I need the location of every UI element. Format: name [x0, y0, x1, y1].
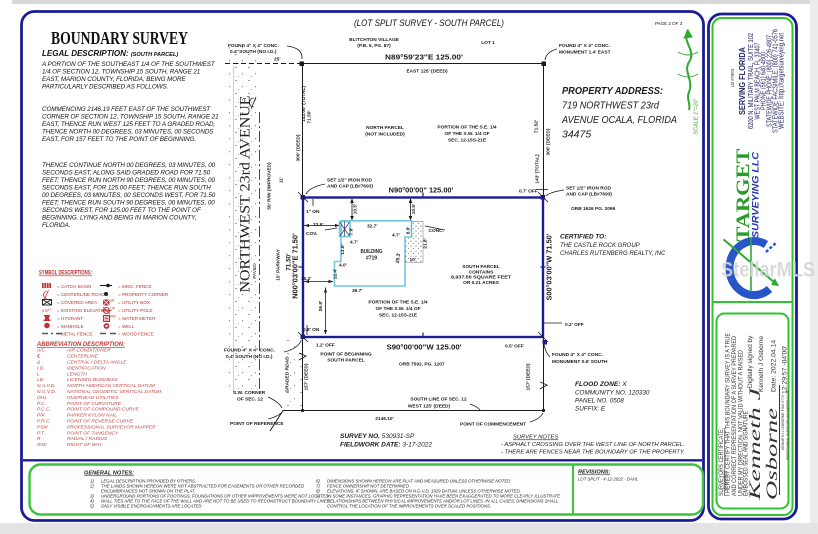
svg-text:CONTAINS: CONTAINS — [469, 269, 494, 275]
svg-text:25': 25' — [274, 57, 280, 63]
svg-text:CONC.: CONC. — [429, 228, 444, 234]
svg-text:0.4' SOUTH (NO I.D.): 0.4' SOUTH (NO I.D.) — [226, 354, 273, 360]
svg-text:ONLY VISIBLE ENCROACHMENTS ARE: ONLY VISIBLE ENCROACHMENTS ARE LOCATED — [101, 503, 202, 508]
svg-text:RADIAL / RADIUS: RADIAL / RADIUS — [67, 436, 108, 442]
svg-text:COMMENCING 2146.19 FEET EAST O: COMMENCING 2146.19 FEET EAST OF THE SOUT… — [42, 106, 211, 113]
svg-text:4.7': 4.7' — [350, 240, 358, 246]
svg-text:= WELL: = WELL — [118, 324, 135, 329]
svg-text:719 NORTHWEST 23rd: 719 NORTHWEST 23rd — [562, 100, 660, 112]
svg-text:AND CAP (LB#7693): AND CAP (LB#7693) — [327, 184, 373, 190]
svg-text:= PROPERTY CORNER: = PROPERTY CORNER — [118, 292, 169, 297]
svg-text:157' (DEED): 157' (DEED) — [526, 363, 532, 390]
svg-text:CORNER OF SECTION 12, TOWNSHIP: CORNER OF SECTION 12, TOWNSHIP 15 SOUTH,… — [42, 114, 219, 121]
svg-text:FOUND 4" X 4" CONC.: FOUND 4" X 4" CONC. — [228, 43, 279, 49]
svg-text:POINT OF REVERSE CURVE: POINT OF REVERSE CURVE — [67, 419, 134, 425]
svg-text:SECONDS EAST, FOR 125.00 FEET;: SECONDS EAST, FOR 125.00 FEET; THENCE RU… — [42, 185, 211, 192]
svg-text:PAGE 2 OF 3: PAGE 2 OF 3 — [655, 21, 683, 26]
svg-text:CENTRAL / DELTA ANGLE: CENTRAL / DELTA ANGLE — [67, 360, 127, 366]
svg-text:AIR CONDITIONER: AIR CONDITIONER — [66, 348, 111, 354]
svg-text:POINT OF CURVATURE: POINT OF CURVATURE — [67, 401, 122, 407]
svg-text:PARKER KYLON NAIL: PARKER KYLON NAIL — [67, 413, 117, 419]
svg-text:CONTROL THE LOCATION OF THE IM: CONTROL THE LOCATION OF THE IMPROVEMENTS… — [327, 503, 491, 508]
svg-text:FLORIDA.: FLORIDA. — [42, 222, 70, 229]
svg-text:CERTIFIED TO:: CERTIFIED TO: — [560, 234, 606, 241]
svg-text:LOT 1: LOT 1 — [481, 40, 495, 46]
svg-text:LB #7893: LB #7893 — [730, 68, 735, 87]
svg-text:OVERHEAD UTILITIES: OVERHEAD UTILITIES — [67, 395, 119, 401]
svg-text:10.5': 10.5' — [411, 204, 417, 214]
svg-text:N89°59'23"E 125.00': N89°59'23"E 125.00' — [385, 53, 463, 62]
svg-text:IDENTIFICATION: IDENTIFICATION — [67, 365, 106, 371]
svg-text:LB: LB — [37, 377, 44, 383]
svg-text:10.5': 10.5' — [353, 204, 359, 214]
svg-text:10': 10' — [410, 257, 416, 263]
svg-text:POINT OF BEGINNING: POINT OF BEGINNING — [320, 352, 371, 358]
svg-text:= WATER METER: = WATER METER — [118, 316, 156, 321]
svg-text:P/K: P/K — [37, 413, 46, 419]
svg-text:00 DEGREES, 03 MINUTES, 00 SEC: 00 DEGREES, 03 MINUTES, 00 SECONDS WEST,… — [42, 192, 216, 199]
svg-text:SOUTH PARCEL: SOUTH PARCEL — [327, 358, 365, 364]
svg-text:A/C: A/C — [36, 348, 46, 354]
svg-text:THE CASTLE ROCK GROUP: THE CASTLE ROCK GROUP — [560, 243, 640, 249]
svg-text:KENNETH J OSBORNE PSM 5774: KENNETH J OSBORNE PSM 5774 — [781, 395, 785, 450]
svg-text:NORTH PARCEL: NORTH PARCEL — [366, 125, 404, 131]
svg-text:#719: #719 — [366, 256, 377, 262]
svg-text:= MISC. FENCE: = MISC. FENCE — [118, 284, 152, 289]
svg-text:SUFFIX: E: SUFFIX: E — [575, 406, 606, 413]
svg-text:0.2' OFF: 0.2' OFF — [565, 322, 584, 328]
svg-text:GRADED ROAD: GRADED ROAD — [285, 356, 291, 393]
svg-text:= COVERED AREA: = COVERED AREA — [57, 300, 98, 305]
svg-text:SOUTH LINE OF SEC. 12: SOUTH LINE OF SEC. 12 — [410, 397, 467, 403]
svg-text:WM: WM — [110, 315, 116, 319]
svg-text:N.A.V.D.: N.A.V.D. — [37, 383, 56, 389]
svg-text:SCALE 1"=20': SCALE 1"=20' — [694, 98, 700, 134]
svg-text:BLITCHTON VILLAGE: BLITCHTON VILLAGE — [349, 37, 400, 43]
svg-text:0.7' OFF: 0.7' OFF — [519, 189, 538, 195]
svg-text:Date: 2022.04.14: Date: 2022.04.14 — [771, 340, 778, 392]
svg-text:0.5' OFF: 0.5' OFF — [505, 344, 524, 350]
svg-text:4.0': 4.0' — [339, 263, 347, 269]
svg-text:2): 2) — [89, 483, 94, 488]
svg-text:S00°03'00"W 71.50': S00°03'00"W 71.50' — [545, 233, 554, 300]
svg-text:PROPERTY ADDRESS:: PROPERTY ADDRESS: — [562, 85, 663, 97]
svg-text:BEGINNING. LYING AND BEING IN: BEGINNING. LYING AND BEING IN MARION COU… — [42, 215, 197, 222]
svg-text:A PORTION OF THE SOUTHEAST 1/4: A PORTION OF THE SOUTHEAST 1/4 OF THE SO… — [41, 61, 216, 68]
svg-text:POINT OF COMPOUND CURVE: POINT OF COMPOUND CURVE — [67, 407, 140, 413]
svg-text:SOUTH PARCEL: SOUTH PARCEL — [462, 264, 500, 270]
svg-text:P.C.: P.C. — [37, 401, 46, 407]
svg-text:Osborne: Osborne — [764, 408, 781, 500]
svg-text:0.8' ON: 0.8' ON — [303, 327, 320, 333]
svg-text:ORB 7592, PG. 1207: ORB 7592, PG. 1207 — [399, 362, 445, 368]
svg-text:StellarMLS: StellarMLS — [721, 259, 815, 282]
svg-text:= CATCH BASIN: = CATCH BASIN — [57, 284, 92, 289]
svg-text:- ASPHALT CROSSING OVER THE W: - ASPHALT CROSSING OVER THE WEST LINE OF… — [501, 442, 685, 448]
svg-text:SURVEY NOTES: SURVEY NOTES — [513, 435, 558, 441]
svg-text:POINT OF REFERENCE: POINT OF REFERENCE — [230, 421, 284, 427]
svg-text:L: L — [37, 371, 40, 377]
svg-text:71.50': 71.50' — [307, 110, 313, 123]
svg-text:N90°00'00" 125.00': N90°00'00" 125.00' — [389, 186, 454, 195]
svg-text:PORTION OF THE S.E. 1/4: PORTION OF THE S.E. 1/4 — [368, 300, 428, 306]
svg-text:OF THE S.W. 1/4 OF: OF THE S.W. 1/4 OF — [444, 131, 489, 137]
svg-text:SECONDS WEST, FOR 125.00 FEET: SECONDS WEST, FOR 125.00 FEET TO THE POI… — [42, 207, 202, 214]
svg-text:N.G.V.D.: N.G.V.D. — [37, 389, 56, 395]
svg-text:(SIGNED): (SIGNED) — [723, 470, 728, 491]
svg-text:EAST, FOR 157 FEET TO THE POIN: EAST, FOR 157 FEET TO THE POINT OF BEGIN… — [42, 136, 196, 143]
svg-text:P.C.C.: P.C.C. — [37, 407, 51, 413]
svg-text:1/4 OF SECTION 12, TOWNSHIP 15: 1/4 OF SECTION 12, TOWNSHIP 15 SOUTH, RA… — [42, 69, 200, 76]
svg-text:4.7': 4.7' — [392, 233, 400, 239]
svg-text:1" ON: 1" ON — [306, 209, 320, 215]
svg-text:FIELDWORK DATE: 3-17-2022: FIELDWORK DATE: 3-17-2022 — [340, 442, 432, 449]
svg-text:= MANHOLE: = MANHOLE — [57, 324, 84, 329]
svg-text:2146.10': 2146.10' — [375, 416, 393, 422]
svg-text:FOUND 4" X 4" CONC.: FOUND 4" X 4" CONC. — [552, 352, 603, 358]
svg-text:UP: UP — [111, 307, 115, 311]
svg-text:PSM: PSM — [37, 424, 49, 430]
svg-text:COV.: COV. — [306, 231, 317, 237]
svg-text:LICENSED BUSINESS: LICENSED BUSINESS — [67, 377, 118, 383]
svg-text:= UTILITY POLE: = UTILITY POLE — [118, 308, 153, 313]
svg-text:I.D.: I.D. — [37, 365, 45, 371]
svg-text:15.2': 15.2' — [301, 276, 311, 282]
svg-text:RIGHT OF WAY: RIGHT OF WAY — [67, 442, 103, 448]
svg-text:= EXISTING ELEVATION: = EXISTING ELEVATION — [57, 308, 109, 313]
svg-text:300' (DEED): 300' (DEED) — [296, 134, 302, 161]
svg-text:CENTERLINE: CENTERLINE — [67, 354, 99, 360]
svg-text:Digitally signed by: Digitally signed by — [747, 335, 754, 388]
svg-text:PANEL NO. 0508: PANEL NO. 0508 — [575, 398, 624, 405]
svg-text:MONUMENT 1.4' EAST: MONUMENT 1.4' EAST — [559, 50, 611, 56]
svg-text:AVENUE OCALA, FLORIDA: AVENUE OCALA, FLORIDA — [561, 114, 677, 126]
svg-text:S.W. CORNER: S.W. CORNER — [233, 390, 266, 396]
svg-text:9): 9) — [316, 493, 320, 498]
svg-text:COMMUNITY NO. 120330: COMMUNITY NO. 120330 — [575, 390, 650, 397]
svg-text:ABBREVIATION DESCRIPTION:: ABBREVIATION DESCRIPTION: — [36, 341, 125, 348]
svg-text:SET 1/2" IRON ROD: SET 1/2" IRON ROD — [327, 178, 372, 184]
svg-text:Kenneth J: Kenneth J — [747, 386, 764, 501]
svg-text:Kenneth J Osborne: Kenneth J Osborne — [758, 336, 765, 392]
svg-text:LENGTH: LENGTH — [67, 371, 87, 377]
svg-text:13.8': 13.8' — [340, 244, 346, 254]
svg-text:FOUND 4" X 4" CONC.: FOUND 4" X 4" CONC. — [559, 43, 610, 49]
svg-text:WEST 125' (DEED): WEST 125' (DEED) — [408, 404, 451, 410]
svg-text:36.7': 36.7' — [352, 288, 362, 294]
svg-text:12:29:57 -04'00': 12:29:57 -04'00' — [782, 346, 789, 394]
svg-text:(P.B. 5, PG. 87): (P.B. 5, PG. 87) — [357, 43, 391, 49]
svg-text:BOUNDARY SURVEY: BOUNDARY SURVEY — [51, 28, 188, 48]
svg-text:157' (DEED): 157' (DEED) — [304, 363, 310, 390]
svg-text:OF THE S.W. 1/4 OF: OF THE S.W. 1/4 OF — [375, 306, 420, 312]
svg-text:8.8': 8.8' — [406, 227, 412, 235]
svg-text:15' PARKWAY: 15' PARKWAY — [276, 248, 282, 280]
svg-text:SEC. 12-15S-21E: SEC. 12-15S-21E — [379, 313, 418, 319]
svg-text:8,937.50 SQUARE FEET: 8,937.50 SQUARE FEET — [451, 275, 511, 281]
svg-text:Δ: Δ — [36, 360, 40, 366]
svg-text:LOT SPLIT - 4-12-2022 - DAHL: LOT SPLIT - 4-12-2022 - DAHL — [578, 477, 639, 482]
svg-text:SYMBOL DESCRIPTIONS:: SYMBOL DESCRIPTIONS: — [39, 271, 92, 277]
svg-text:21.8': 21.8' — [423, 238, 429, 248]
svg-text:12.4': 12.4' — [333, 269, 339, 279]
svg-text:EAST 125' (DEED): EAST 125' (DEED) — [406, 69, 448, 75]
svg-text:7.9': 7.9' — [349, 228, 355, 236]
svg-text:NATIONAL GEODETIC VERTICAL DAT: NATIONAL GEODETIC VERTICAL DATUM — [67, 389, 162, 395]
svg-text:OR 0.21 ACRES: OR 0.21 ACRES — [463, 280, 500, 286]
svg-text:SURVEY NO. 530931-SP: SURVEY NO. 530931-SP — [340, 433, 415, 440]
svg-text:NORTHWEST 23rd AVENUE: NORTHWEST 23rd AVENUE — [238, 95, 254, 292]
svg-text:26.9': 26.9' — [318, 301, 324, 311]
svg-text:P.T.: P.T. — [37, 430, 45, 436]
svg-text:EAST, MARION COUNTY, FLORIDA;: EAST, MARION COUNTY, FLORIDA; BEING MORE — [42, 76, 187, 83]
svg-text:UB: UB — [110, 299, 114, 303]
svg-text:NORTH AMERICAN VERTICAL DATUM: NORTH AMERICAN VERTICAL DATUM — [67, 383, 156, 389]
svg-text:0.4' SOUTH (NO I.D.): 0.4' SOUTH (NO I.D.) — [230, 49, 277, 55]
svg-text:1.2' OFF: 1.2' OFF — [316, 343, 335, 349]
svg-text:= HYDRANT: = HYDRANT — [57, 316, 83, 321]
svg-text:GENERAL NOTES:: GENERAL NOTES: — [84, 471, 134, 477]
svg-text:= UTILITY BOX: = UTILITY BOX — [118, 300, 150, 305]
svg-text:71.52': 71.52' — [534, 120, 540, 133]
svg-text:MONUMENT 0.6' SOUTH: MONUMENT 0.6' SOUTH — [552, 359, 608, 365]
svg-text:THENCE CONTINUE NORTH 00 DEGRE: THENCE CONTINUE NORTH 00 DEGREES, 03 MIN… — [42, 162, 216, 169]
svg-text:23.9': 23.9' — [313, 222, 323, 228]
svg-text:BUILDING: BUILDING — [361, 249, 383, 255]
svg-text:34475: 34475 — [562, 129, 591, 141]
svg-text:143.00' (TOTAL): 143.00' (TOTAL) — [301, 86, 307, 122]
svg-text:THENCE NORTH 00 DEGREES, 03 MI: THENCE NORTH 00 DEGREES, 03 MINUTES, 00 … — [42, 129, 214, 136]
svg-text:P.R.C.: P.R.C. — [37, 419, 51, 425]
svg-text:50' R/W (IMPROVED): 50' R/W (IMPROVED) — [267, 162, 273, 210]
svg-text:R: R — [37, 436, 41, 442]
svg-text:- THERE ARE FENCES NEAR THE B: - THERE ARE FENCES NEAR THE BOUNDARY OF … — [501, 450, 685, 456]
svg-text:PROFESSIONAL SURVEYOR AND MAPP: PROFESSIONAL SURVEYOR AND MAPPER FL LIC — [786, 390, 790, 460]
svg-text:= METAL FENCE: = METAL FENCE — [57, 332, 93, 337]
svg-text:FEET; THENCE RUN SOUTH 90 DEGR: FEET; THENCE RUN SOUTH 90 DEGREES, 00 MI… — [42, 200, 215, 207]
svg-text:OF SEC. 12: OF SEC. 12 — [237, 397, 263, 403]
svg-text:OHL: OHL — [37, 395, 47, 401]
svg-text:CHARLES RUTENBERG REALTY, INC: CHARLES RUTENBERG REALTY, INC — [560, 251, 666, 257]
svg-text:FEET; THENCE RUN NORTH 90 DEGR: FEET; THENCE RUN NORTH 90 DEGREES, 00 MI… — [42, 177, 215, 184]
svg-text:(LOT SPLIT SURVEY - SOUTH PARC: (LOT SPLIT SURVEY - SOUTH PARCEL) — [354, 18, 504, 28]
svg-text:5): 5) — [90, 503, 94, 508]
svg-text:PORTION OF THE S.E. 1/4: PORTION OF THE S.E. 1/4 — [437, 125, 497, 131]
svg-text:FLOOD ZONE: X: FLOOD ZONE: X — [575, 381, 627, 388]
svg-text:SECONDS EAST, ALONG SAID GRADE: SECONDS EAST, ALONG SAID GRADED ROAD FOR… — [42, 170, 211, 177]
svg-text:= CENTERLINE ROAD: = CENTERLINE ROAD — [57, 292, 105, 297]
svg-text:EAST, THENCE RUN WEST 125 FEET: EAST, THENCE RUN WEST 125 FEET TO A GRAD… — [42, 121, 215, 128]
svg-text:71.50': 71.50' — [286, 253, 293, 271]
svg-text:PARTICULARLY DESCRIBED AS FOLL: PARTICULARLY DESCRIBED AS FOLLOWS. — [42, 84, 168, 91]
svg-text:32.7': 32.7' — [367, 224, 377, 230]
svg-text:PROFESSIONAL SURVEYOR MAPPER: PROFESSIONAL SURVEYOR MAPPER — [67, 424, 156, 430]
svg-text:R/W: R/W — [37, 442, 47, 448]
svg-text:FOUND 4" X 4" CONC.: FOUND 4" X 4" CONC. — [224, 348, 275, 354]
svg-text:SERVING FLORIDA: SERVING FLORIDA — [737, 47, 747, 115]
svg-text:POINT OF TANGENCY: POINT OF TANGENCY — [67, 430, 119, 436]
svg-text:= WOOD FENCE: = WOOD FENCE — [118, 332, 154, 337]
svg-text:SET 1/2" IRON ROD: SET 1/2" IRON ROD — [566, 186, 611, 192]
svg-text:S90°00'00"W 125.00': S90°00'00"W 125.00' — [387, 343, 462, 352]
svg-text:ORB 1626 PG. 2096: ORB 1626 PG. 2096 — [571, 206, 616, 212]
svg-text:SURVEYING LLC: SURVEYING LLC — [751, 152, 762, 238]
svg-text:WEBSITE: http://targetsurveyin: WEBSITE: http://targetsurveying.net — [779, 33, 786, 129]
svg-text:AND CAP (LB#7693): AND CAP (LB#7693) — [566, 192, 612, 198]
svg-text:REVISIONS:: REVISIONS: — [578, 470, 610, 476]
svg-text:11': 11' — [279, 177, 285, 183]
svg-text:(NOT INCLUDED): (NOT INCLUDED) — [365, 132, 405, 138]
svg-text:SEC. 12-15S-21E: SEC. 12-15S-21E — [448, 138, 487, 144]
svg-text:143' (TOTAL): 143' (TOTAL) — [535, 154, 541, 184]
svg-text:300' (DEED): 300' (DEED) — [546, 128, 552, 155]
svg-text:POINT OF COMMENCEMENT: POINT OF COMMENCEMENT — [460, 422, 526, 428]
